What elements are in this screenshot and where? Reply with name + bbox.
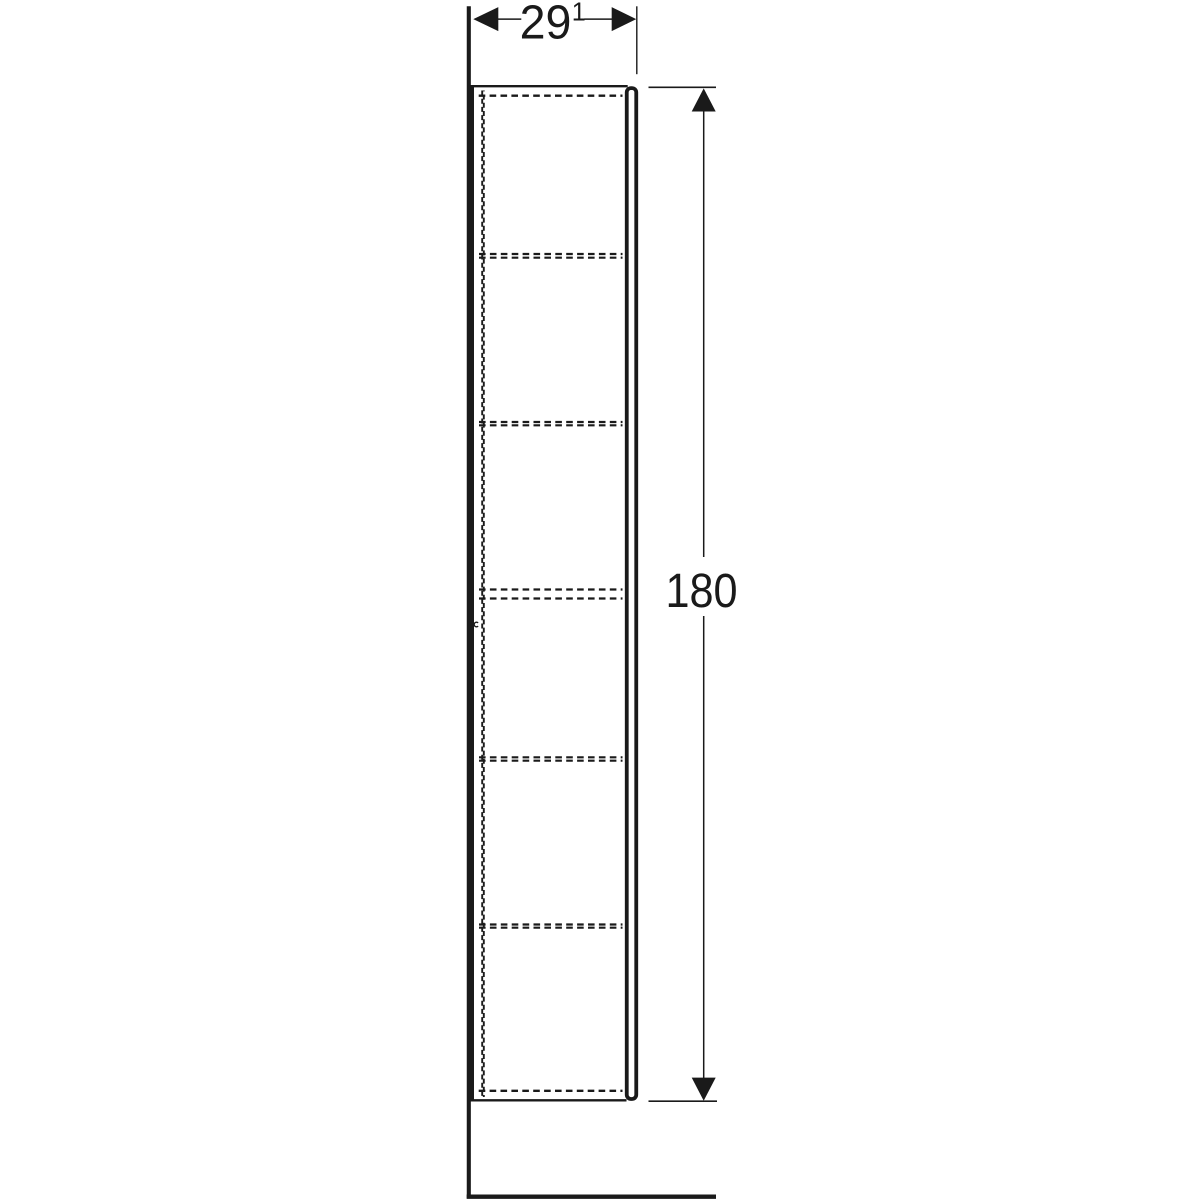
svg-text:29: 29 xyxy=(520,0,572,49)
svg-text:1: 1 xyxy=(572,0,586,26)
svg-text:180: 180 xyxy=(665,564,737,618)
